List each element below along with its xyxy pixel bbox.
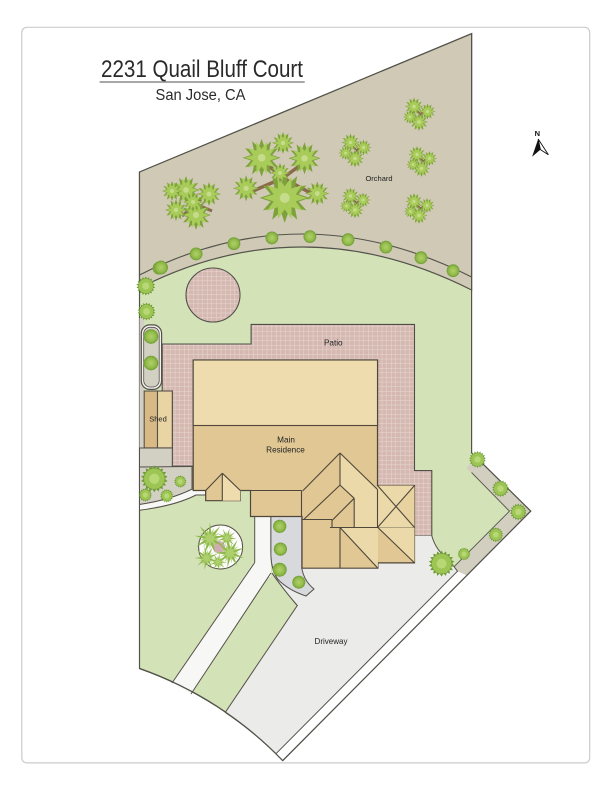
svg-text:San Jose, CA: San Jose, CA <box>156 87 247 104</box>
svg-text:Driveway: Driveway <box>315 637 348 646</box>
svg-text:Orchard: Orchard <box>365 174 392 183</box>
svg-text:Patio: Patio <box>324 339 343 348</box>
svg-text:Main: Main <box>277 436 295 445</box>
svg-text:Shed: Shed <box>149 415 167 424</box>
svg-text:N: N <box>535 129 540 138</box>
svg-text:2231 Quail Bluff Court: 2231 Quail Bluff Court <box>101 56 303 83</box>
svg-text:Residence: Residence <box>266 446 305 455</box>
